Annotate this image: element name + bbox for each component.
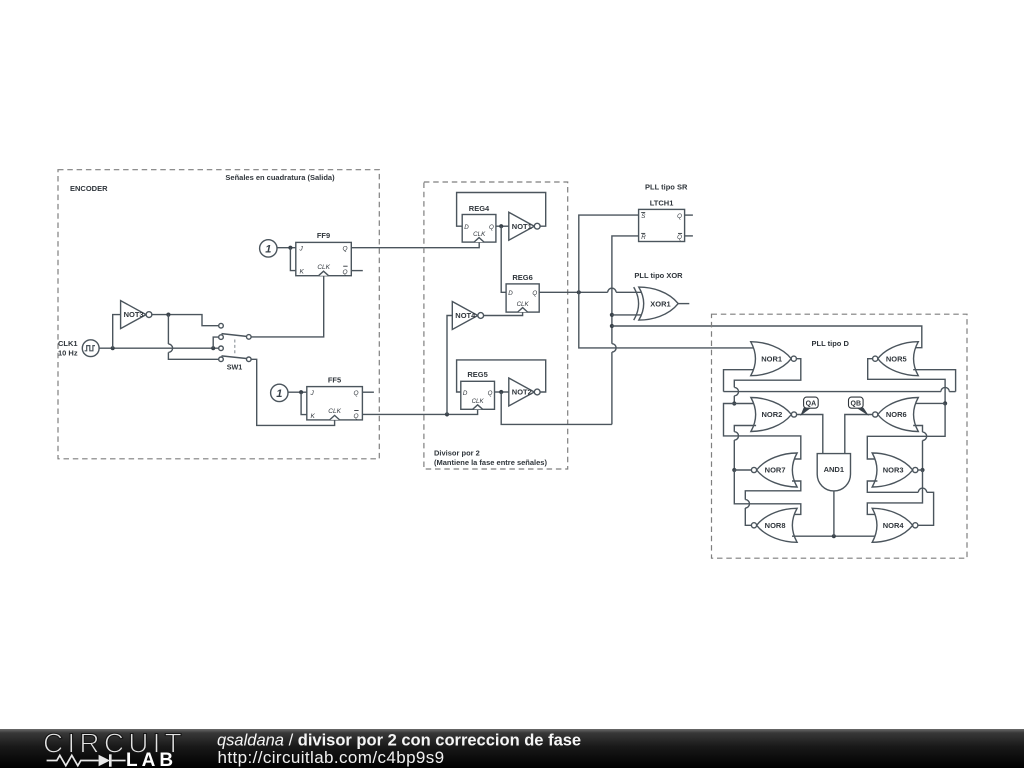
svg-text:NOT1: NOT1 bbox=[512, 222, 532, 231]
svg-text:K: K bbox=[300, 269, 305, 276]
svg-text:NOR6: NOR6 bbox=[886, 410, 907, 419]
svg-text:D: D bbox=[508, 290, 513, 297]
svg-text:QA: QA bbox=[806, 400, 817, 407]
svg-text:http://circuitlab.com/c4bp9s9: http://circuitlab.com/c4bp9s9 bbox=[218, 748, 445, 767]
svg-text:Q: Q bbox=[532, 290, 537, 297]
svg-text:PLL tipo SR: PLL tipo SR bbox=[645, 183, 688, 192]
svg-text:REG5: REG5 bbox=[467, 370, 487, 379]
svg-text:LAB: LAB bbox=[126, 750, 177, 768]
svg-text:FF5: FF5 bbox=[328, 375, 341, 384]
svg-text:REG4: REG4 bbox=[469, 204, 490, 213]
svg-text:K: K bbox=[311, 413, 316, 420]
svg-text:CLK: CLK bbox=[328, 408, 341, 415]
svg-text:FF9: FF9 bbox=[317, 231, 330, 240]
svg-text:NOT4: NOT4 bbox=[455, 311, 476, 320]
svg-text:1: 1 bbox=[276, 388, 282, 400]
svg-text:Q: Q bbox=[677, 234, 682, 241]
svg-text:PLL tipo XOR: PLL tipo XOR bbox=[634, 271, 683, 280]
svg-text:NOR8: NOR8 bbox=[765, 521, 786, 530]
svg-text:Q: Q bbox=[488, 390, 493, 397]
svg-text:Q: Q bbox=[342, 246, 347, 253]
svg-text:NOR3: NOR3 bbox=[883, 466, 904, 475]
svg-text:PLL tipo D: PLL tipo D bbox=[812, 339, 850, 348]
svg-text:S: S bbox=[641, 213, 646, 220]
svg-text:CLK: CLK bbox=[472, 398, 485, 405]
svg-text:ENCODER: ENCODER bbox=[70, 184, 108, 193]
svg-text:10 Hz: 10 Hz bbox=[58, 349, 78, 358]
svg-text:Q: Q bbox=[342, 269, 347, 276]
svg-text:CLK: CLK bbox=[473, 231, 486, 238]
svg-text:J: J bbox=[299, 246, 304, 253]
svg-text:NOR1: NOR1 bbox=[761, 354, 782, 363]
svg-text:LTCH1: LTCH1 bbox=[650, 199, 674, 208]
svg-text:D: D bbox=[463, 390, 468, 397]
svg-text:R: R bbox=[641, 234, 646, 241]
svg-text:NOT2: NOT2 bbox=[512, 388, 532, 397]
svg-text:NOR7: NOR7 bbox=[765, 466, 786, 475]
svg-text:Q: Q bbox=[353, 413, 358, 420]
svg-text:Q: Q bbox=[677, 213, 682, 220]
svg-text:NOT3: NOT3 bbox=[124, 310, 144, 319]
svg-text:qsaldana / divisor por 2 con c: qsaldana / divisor por 2 con correccion … bbox=[217, 731, 581, 749]
svg-text:Q: Q bbox=[489, 224, 494, 231]
svg-text:NOR4: NOR4 bbox=[883, 521, 905, 530]
svg-text:J: J bbox=[310, 390, 315, 397]
svg-text:CLK: CLK bbox=[317, 264, 330, 271]
svg-text:AND1: AND1 bbox=[824, 465, 844, 474]
svg-text:CLK: CLK bbox=[517, 301, 530, 308]
svg-text:Divisor por 2: Divisor por 2 bbox=[434, 448, 480, 457]
svg-text:NOR5: NOR5 bbox=[886, 354, 907, 363]
svg-text:REG6: REG6 bbox=[512, 273, 532, 282]
svg-text:CLK1: CLK1 bbox=[58, 339, 78, 348]
svg-text:XOR1: XOR1 bbox=[650, 299, 670, 308]
svg-text:NOR2: NOR2 bbox=[761, 410, 782, 419]
svg-text:D: D bbox=[464, 224, 469, 231]
svg-text:Q: Q bbox=[353, 390, 358, 397]
svg-text:1: 1 bbox=[265, 243, 271, 255]
svg-text:Señales en cuadratura (Salida): Señales en cuadratura (Salida) bbox=[225, 173, 335, 182]
svg-text:SW1: SW1 bbox=[227, 363, 243, 372]
svg-text:QB: QB bbox=[851, 400, 862, 407]
svg-text:(Mantiene la fase entre señale: (Mantiene la fase entre señales) bbox=[434, 458, 547, 467]
